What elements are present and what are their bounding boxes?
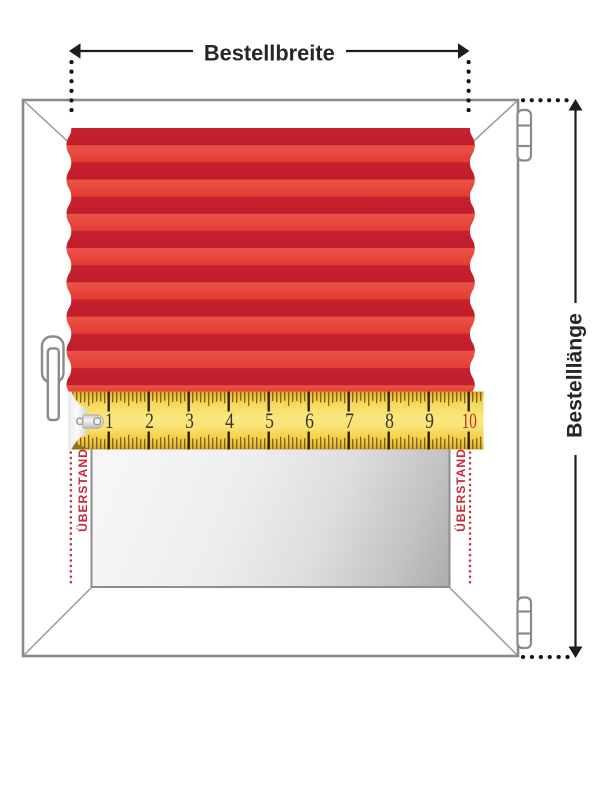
svg-text:6: 6: [305, 408, 314, 433]
svg-text:3: 3: [185, 408, 194, 433]
svg-text:Bestelllänge: Bestelllänge: [564, 313, 587, 438]
svg-text:4: 4: [225, 408, 234, 433]
svg-text:7: 7: [345, 408, 354, 433]
svg-text:2: 2: [145, 408, 154, 433]
svg-text:10: 10: [462, 408, 477, 433]
svg-text:ÜBERSTAND: ÜBERSTAND: [453, 448, 468, 532]
svg-text:ÜBERSTAND: ÜBERSTAND: [75, 448, 90, 532]
svg-text:9: 9: [425, 408, 434, 433]
svg-text:5: 5: [265, 408, 274, 433]
svg-text:8: 8: [385, 408, 394, 433]
svg-text:Bestellbreite: Bestellbreite: [204, 40, 335, 65]
svg-text:1: 1: [105, 408, 114, 433]
